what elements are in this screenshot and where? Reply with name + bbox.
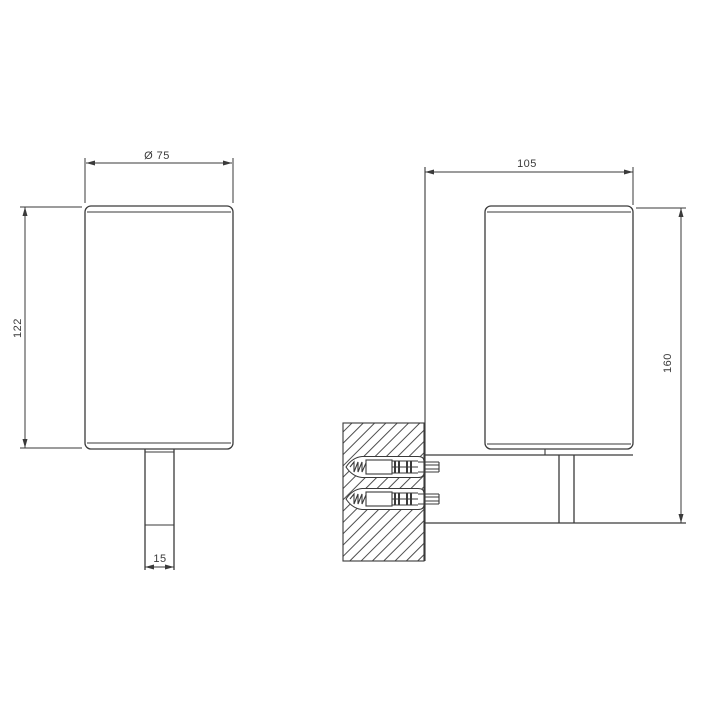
dim-arrow-down	[23, 439, 28, 448]
side-depth-dimension: 105	[425, 158, 633, 205]
dim-arrow-up	[679, 208, 684, 217]
side-height-dimension: 160	[636, 208, 686, 523]
dim-arrow-right	[165, 565, 174, 570]
side-view: 105 160	[343, 158, 686, 561]
stem-width-dimension: 15	[145, 553, 174, 570]
dim-arrow-left	[425, 170, 434, 175]
dim-arrow-left	[145, 565, 154, 570]
technical-drawing: Ø 75 122 15	[0, 0, 720, 720]
front-cup-outline	[85, 206, 233, 449]
side-cup-outline	[485, 206, 633, 449]
dim-arrow-left	[86, 161, 95, 166]
front-diameter-dimension: Ø 75	[85, 150, 233, 203]
dim-arrow-up	[23, 207, 28, 216]
front-height-label: 122	[12, 318, 24, 338]
dim-arrow-right	[223, 161, 232, 166]
side-height-label: 160	[662, 353, 674, 373]
side-depth-label: 105	[517, 158, 537, 170]
front-height-dimension: 122	[12, 207, 82, 448]
front-diameter-label: Ø 75	[144, 150, 170, 162]
front-stem	[145, 449, 174, 570]
stem-width-label: 15	[153, 553, 166, 565]
drawing-canvas: Ø 75 122 15	[0, 0, 720, 720]
dim-arrow-down	[679, 514, 684, 523]
mounting-arm	[425, 449, 686, 523]
front-view: Ø 75 122 15	[12, 150, 233, 570]
dim-arrow-right	[624, 170, 633, 175]
